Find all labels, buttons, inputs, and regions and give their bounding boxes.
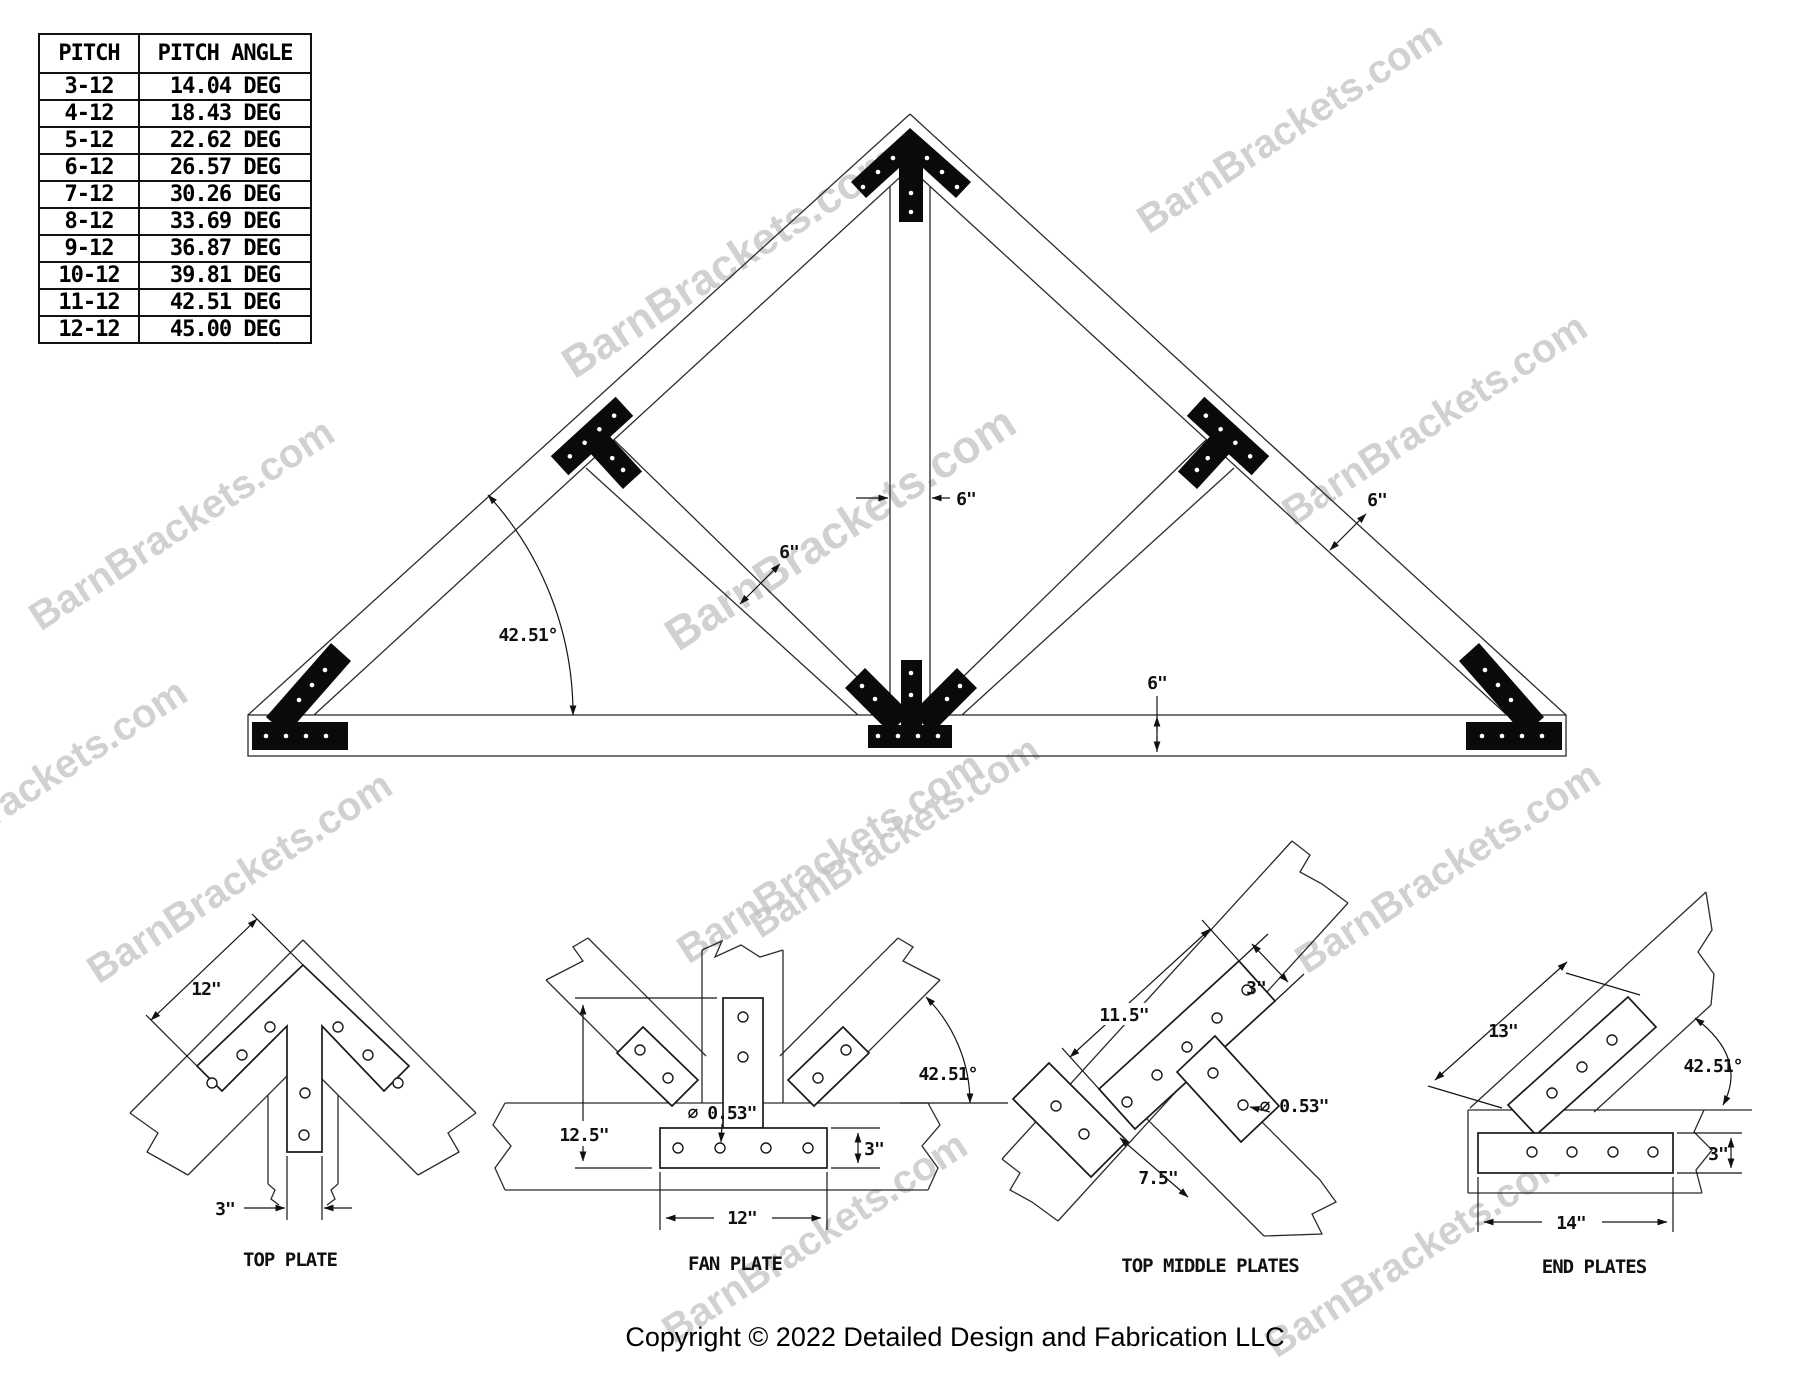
table-row: 8-1233.69 DEG [39, 208, 311, 235]
middle-plate-length-label: 11.5" [1099, 1005, 1148, 1026]
pitch-cell: 7-12 [39, 181, 139, 208]
middle-plate-hole-label: ⌀ 0.53" [1260, 1096, 1329, 1117]
middle-plate-width-label: 3" [1246, 978, 1266, 999]
angle-cell: 22.62 DEG [139, 127, 311, 154]
truss-elevation: 6" 6" 6" 6" 42.51° [248, 114, 1566, 756]
pitch-cell: 12-12 [39, 316, 139, 343]
drawing-sheet: { "watermark_text": "BarnBrackets.com", … [0, 0, 1800, 1391]
col-header-pitch: PITCH [39, 34, 139, 73]
pitch-cell: 9-12 [39, 235, 139, 262]
dim-3in: 3" [831, 1128, 884, 1168]
angle-cell: 14.04 DEG [139, 73, 311, 100]
middle-plate-stem-label: 7.5" [1138, 1168, 1177, 1189]
dim-hole-dia: ⌀ 0.53" [1250, 1096, 1328, 1117]
left-heel-bracket [252, 643, 351, 750]
angle-cell: 36.87 DEG [139, 235, 311, 262]
bottom-fan-bracket [845, 660, 977, 748]
pitch-cell: 10-12 [39, 262, 139, 289]
copyright-line: Copyright © 2022 Detailed Design and Fab… [55, 1322, 1800, 1353]
pitch-angle-table: PITCH PITCH ANGLE 3-1214.04 DEG 4-1218.4… [38, 33, 312, 344]
pitch-angle-label: 42.51° [498, 625, 557, 646]
left-t-bracket [551, 397, 665, 510]
table-row: 11-1242.51 DEG [39, 289, 311, 316]
fan-plate-height-label: 12.5" [559, 1125, 608, 1146]
dim-3in: 3" [1677, 1133, 1742, 1173]
pitch-cell: 8-12 [39, 208, 139, 235]
fan-plate-angle-label: 42.51° [918, 1064, 977, 1085]
angle-cell: 33.69 DEG [139, 208, 311, 235]
top-plate-shape [197, 965, 409, 1152]
pitch-angle-dim: 42.51° [488, 495, 573, 715]
angle-cell: 26.57 DEG [139, 154, 311, 181]
pitch-cell: 5-12 [39, 127, 139, 154]
detail-top-middle-plates: 11.5" 3" ⌀ 0.53" 7.5" TOP MIDDLE PLATES [1002, 841, 1348, 1277]
table-row: 7-1230.26 DEG [39, 181, 311, 208]
king-post-width-dim: 6" [856, 489, 976, 510]
detail-title-fan-plate: FAN PLATE [688, 1253, 783, 1275]
end-plate-base-label: 14" [1556, 1213, 1586, 1234]
angle-cell: 18.43 DEG [139, 100, 311, 127]
t-plate-shape [1013, 961, 1279, 1177]
pitch-cell: 4-12 [39, 100, 139, 127]
table-row: 10-1239.81 DEG [39, 262, 311, 289]
web-width-dim: 6" [740, 542, 799, 604]
dim-3in: 3" [1239, 934, 1304, 1001]
detail-title-top-plate: TOP PLATE [243, 1249, 338, 1271]
dim-12in: 12" [660, 1172, 827, 1230]
col-header-pitch-angle: PITCH ANGLE [139, 34, 311, 73]
end-plate-width-label: 3" [1708, 1144, 1728, 1165]
dim-3in: 3" [215, 1156, 352, 1220]
table-row: 9-1236.87 DEG [39, 235, 311, 262]
pitch-cell: 11-12 [39, 289, 139, 316]
detail-title-top-middle: TOP MIDDLE PLATES [1121, 1255, 1299, 1277]
fan-plate-shape [617, 998, 869, 1168]
dim-7-5in: 7.5" [1120, 1138, 1188, 1197]
dim-angle: 42.51° [1683, 1018, 1742, 1105]
rafter-width-label: 6" [1367, 490, 1387, 511]
end-plate-angle-label: 42.51° [1683, 1056, 1742, 1077]
table-row: 6-1226.57 DEG [39, 154, 311, 181]
right-t-bracket [1155, 397, 1269, 510]
web-width-label: 6" [779, 542, 799, 563]
table-row: 5-1222.62 DEG [39, 127, 311, 154]
angle-cell: 39.81 DEG [139, 262, 311, 289]
chord-depth-label: 6" [1147, 673, 1167, 694]
end-plate-diag-label: 13" [1488, 1021, 1518, 1042]
detail-fan-plate: 12.5" ⌀ 0.53" 3" 12" 42.51° FAN PLATE [493, 938, 1008, 1275]
detail-end-plates: 13" 42.51° 3" 14" END PLATES [1428, 892, 1752, 1278]
detail-top-plate: 12" 3" TOP PLATE [130, 914, 476, 1271]
top-plate-length-label: 12" [191, 979, 221, 1000]
rafter-width-dim: 6" [1330, 490, 1387, 550]
angle-cell: 30.26 DEG [139, 181, 311, 208]
pitch-cell: 6-12 [39, 154, 139, 181]
fan-plate-hole-label: ⌀ 0.53" [688, 1103, 757, 1124]
top-plate-width-label: 3" [215, 1199, 235, 1220]
dim-angle: 42.51° [900, 997, 1008, 1103]
table-row: 4-1218.43 DEG [39, 100, 311, 127]
angle-cell: 42.51 DEG [139, 289, 311, 316]
fan-plate-base-label: 12" [727, 1208, 757, 1229]
table-header-row: PITCH PITCH ANGLE [39, 34, 311, 73]
detail-title-end-plates: END PLATES [1542, 1256, 1647, 1278]
pitch-cell: 3-12 [39, 73, 139, 100]
table-row: 3-1214.04 DEG [39, 73, 311, 100]
fan-plate-width-label: 3" [864, 1139, 884, 1160]
chord-depth-dim: 6" [1147, 673, 1167, 752]
table-row: 12-1245.00 DEG [39, 316, 311, 343]
king-post-width-label: 6" [956, 489, 976, 510]
angle-cell: 45.00 DEG [139, 316, 311, 343]
dim-14in: 14" [1478, 1177, 1673, 1234]
